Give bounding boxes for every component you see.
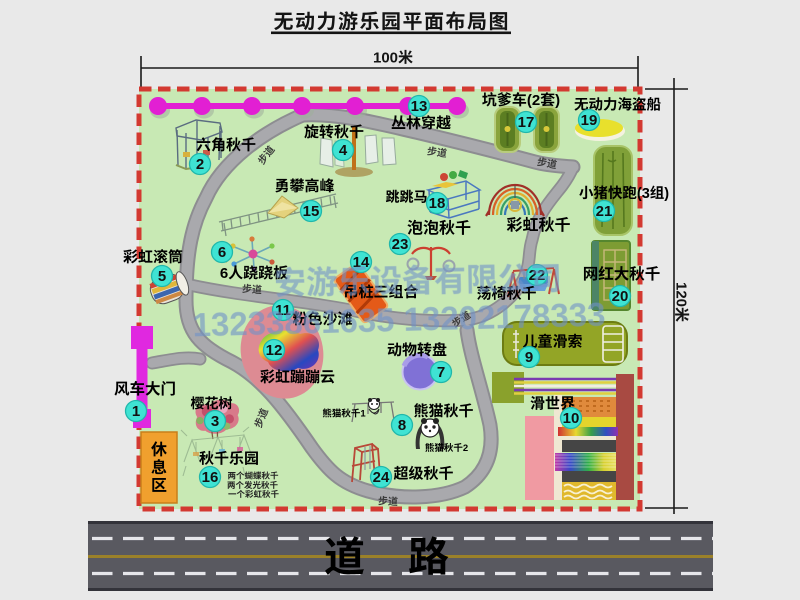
- svg-text:2: 2: [463, 443, 468, 454]
- svg-text:1: 1: [132, 403, 140, 420]
- svg-text:0: 0: [381, 50, 389, 67]
- svg-text:23: 23: [392, 236, 409, 253]
- svg-text:19: 19: [581, 112, 598, 129]
- svg-text:6: 6: [218, 244, 226, 261]
- svg-text:8: 8: [398, 417, 406, 434]
- svg-text:(: (: [637, 186, 642, 202]
- svg-text:24: 24: [373, 469, 390, 486]
- svg-text:4: 4: [339, 142, 348, 159]
- svg-text:9: 9: [525, 349, 533, 366]
- svg-text:1: 1: [672, 282, 689, 290]
- svg-text:20: 20: [612, 288, 629, 305]
- svg-text:2: 2: [672, 290, 689, 298]
- svg-text:): ): [555, 92, 560, 109]
- svg-text:1: 1: [360, 409, 366, 420]
- svg-text:12: 12: [266, 342, 283, 359]
- svg-text:3: 3: [211, 413, 219, 430]
- svg-text:2: 2: [196, 156, 204, 173]
- svg-text:3: 3: [642, 186, 650, 202]
- svg-text:6: 6: [220, 265, 228, 282]
- svg-text:1: 1: [373, 50, 381, 67]
- svg-text:5: 5: [158, 268, 166, 285]
- svg-text:0: 0: [672, 299, 689, 307]
- svg-text:7: 7: [437, 364, 445, 381]
- svg-text:13: 13: [411, 98, 428, 115]
- svg-text:): ): [664, 186, 669, 202]
- svg-text:(: (: [527, 92, 532, 109]
- svg-text:17: 17: [518, 114, 535, 131]
- svg-text:21: 21: [596, 203, 613, 220]
- svg-text:15: 15: [303, 203, 320, 220]
- svg-text:16: 16: [202, 469, 219, 486]
- svg-text:2: 2: [532, 92, 540, 109]
- svg-text:10: 10: [563, 410, 580, 427]
- svg-text:0: 0: [390, 50, 398, 67]
- svg-text:18: 18: [429, 195, 446, 212]
